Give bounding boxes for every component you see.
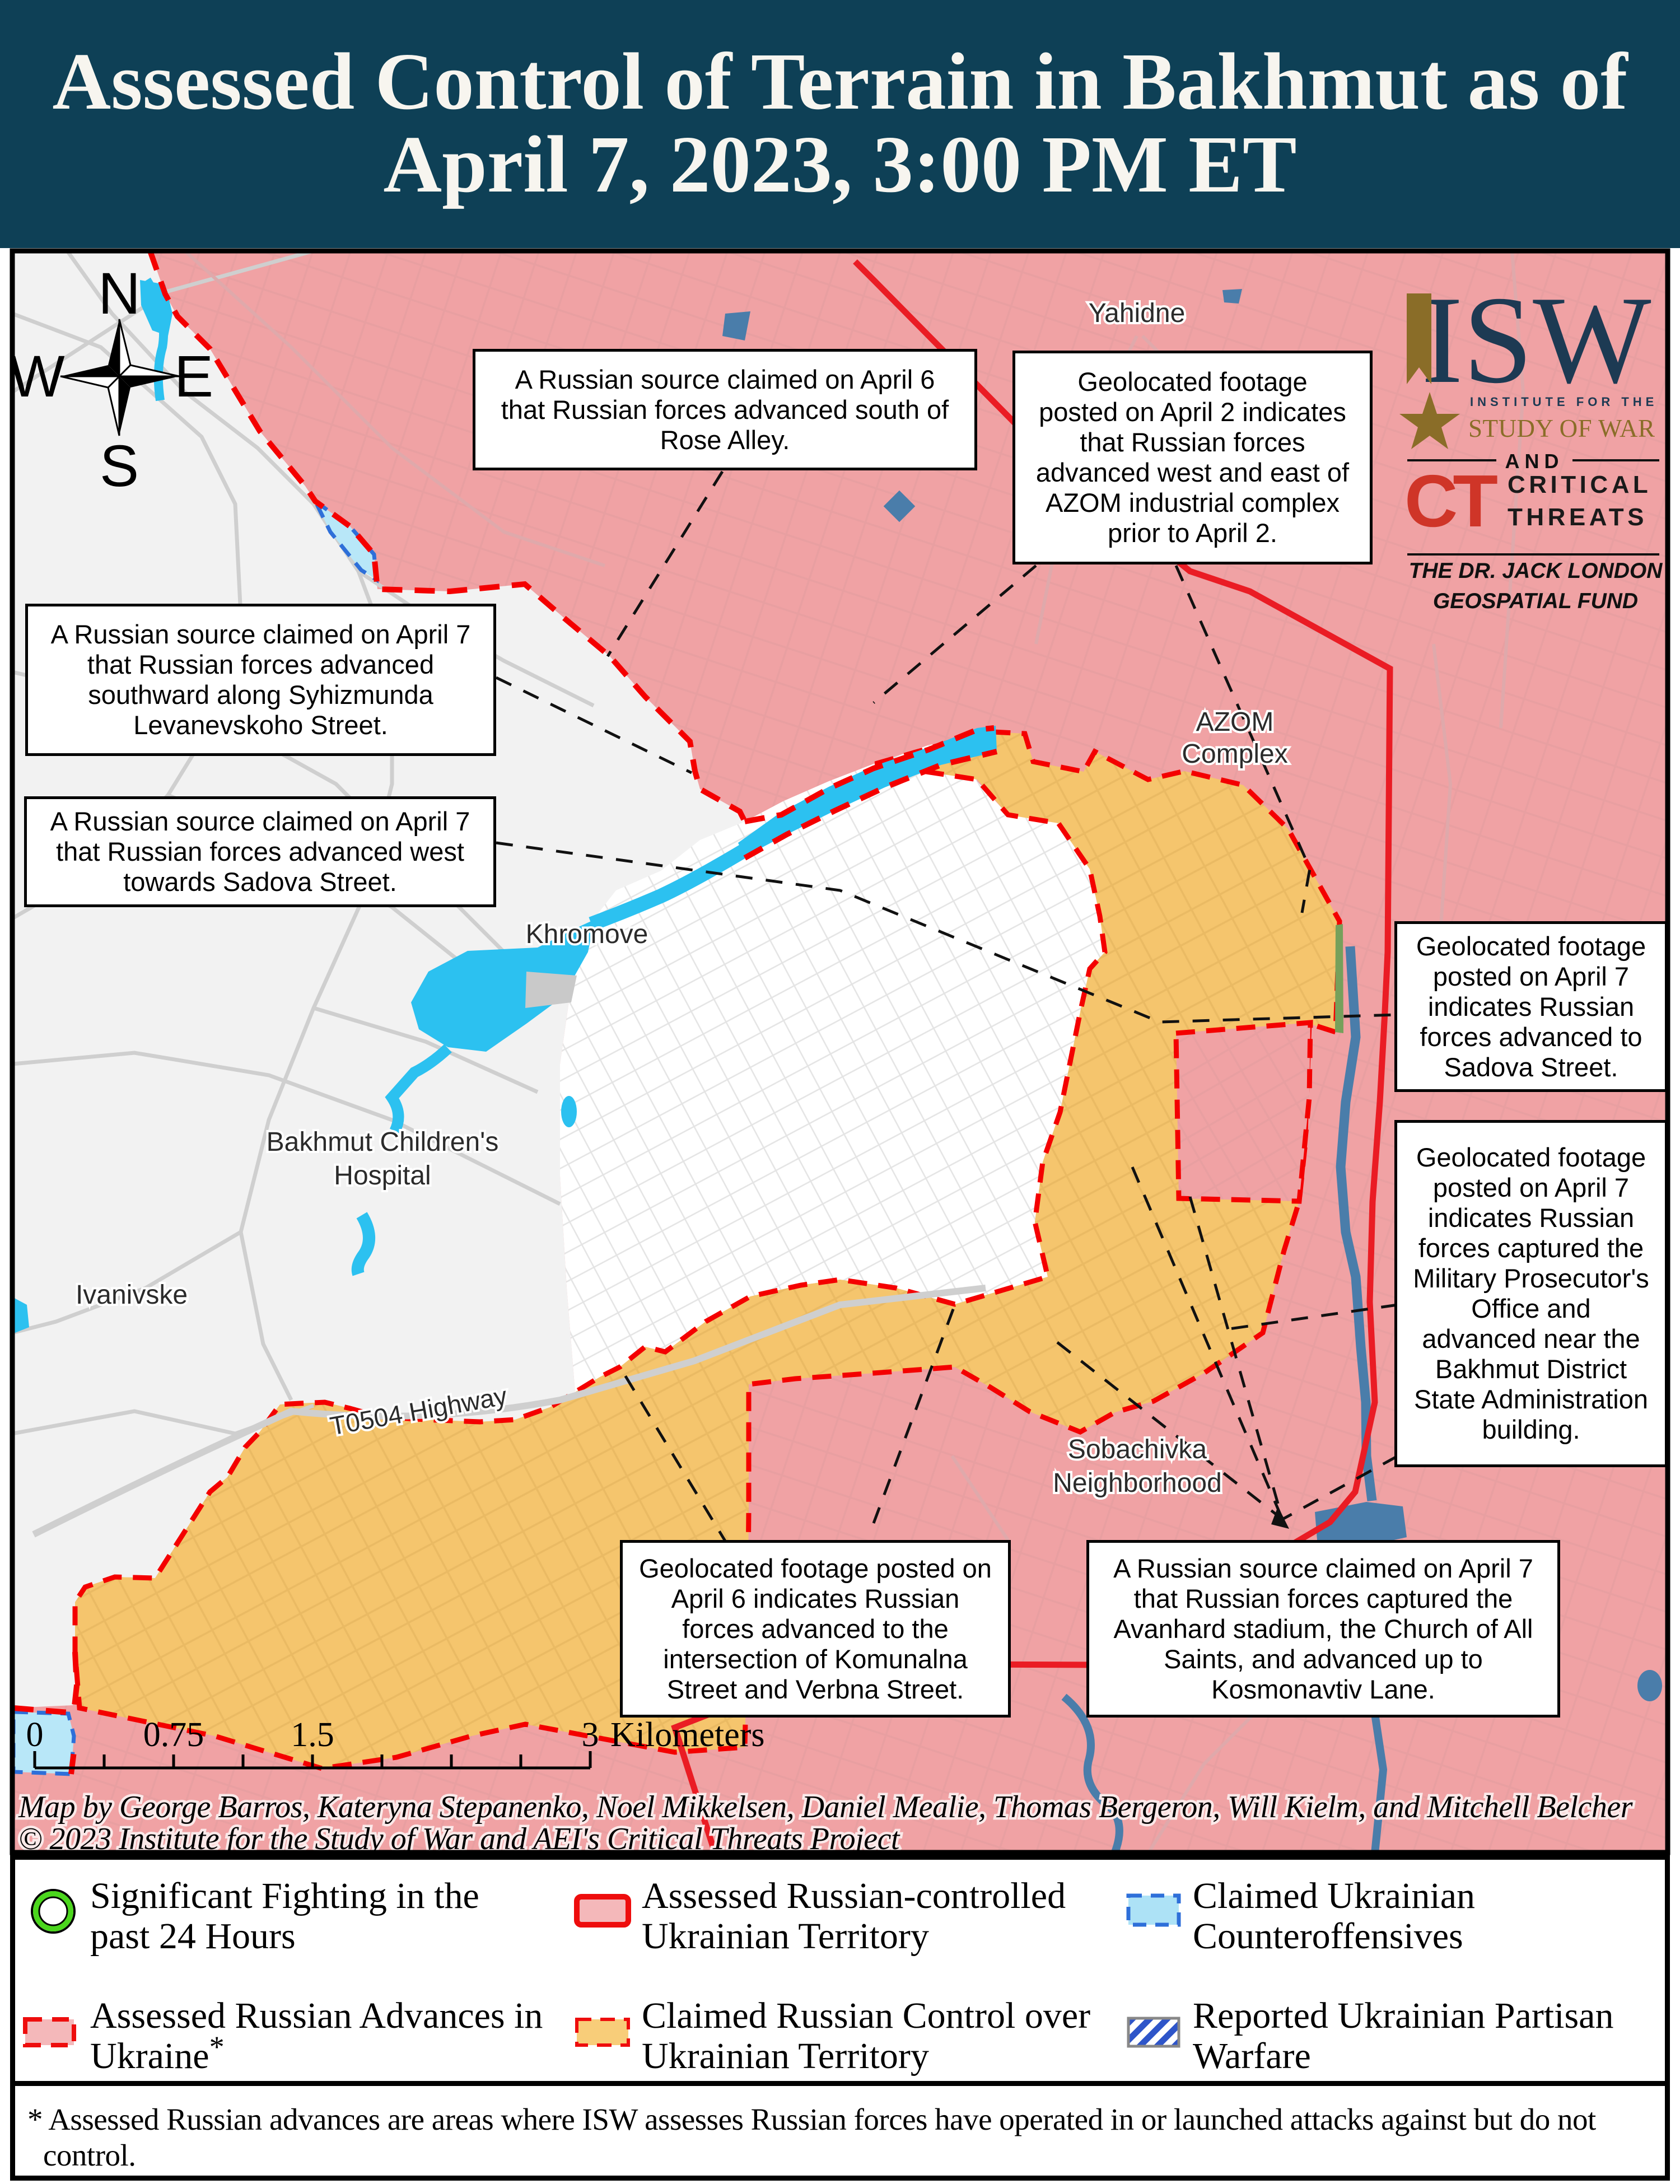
svg-text:1.5: 1.5: [291, 1716, 334, 1754]
svg-text:THREATS: THREATS: [1508, 503, 1648, 531]
svg-text:INSTITUTE FOR THE: INSTITUTE FOR THE: [1470, 395, 1658, 409]
svg-text:0: 0: [26, 1716, 44, 1754]
svg-text:Claimed Russian Control over: Claimed Russian Control over: [642, 1995, 1090, 2036]
svg-text:CT: CT: [1404, 460, 1497, 542]
svg-text:Assessed Russian Advances in: Assessed Russian Advances in: [90, 1995, 543, 2036]
svg-text:THE DR. JACK LONDON: THE DR. JACK LONDON: [1409, 559, 1663, 583]
svg-text:Ivanivske: Ivanivske: [76, 1280, 188, 1310]
svg-text:CRITICAL: CRITICAL: [1508, 471, 1651, 498]
svg-text:Ukrainian Territory: Ukrainian Territory: [642, 1916, 929, 1957]
svg-text:3: 3: [582, 1716, 599, 1754]
svg-text:STUDY OF WAR: STUDY OF WAR: [1468, 414, 1655, 442]
svg-text:S: S: [100, 433, 139, 499]
svg-text:Map by George Barros, Kateryna: Map by George Barros, Kateryna Stepanenk…: [18, 1790, 1633, 1824]
svg-text:Bakhmut Children's: Bakhmut Children's: [267, 1127, 499, 1157]
svg-text:Khromove: Khromove: [526, 920, 648, 949]
svg-text:Claimed Ukrainian: Claimed Ukrainian: [1193, 1875, 1475, 1916]
svg-text:0.75: 0.75: [143, 1716, 204, 1754]
svg-text:Significant Fighting in the: Significant Fighting in the: [90, 1875, 479, 1916]
svg-text:Kilometers: Kilometers: [610, 1716, 765, 1754]
svg-text:Ukraine*: Ukraine*: [90, 2030, 225, 2076]
svg-text:Hospital: Hospital: [334, 1161, 431, 1191]
svg-text:AZOM: AZOM: [1196, 707, 1274, 737]
svg-text:GEOSPATIAL FUND: GEOSPATIAL FUND: [1433, 589, 1638, 613]
svg-text:Assessed Russian-controlled: Assessed Russian-controlled: [642, 1875, 1066, 1916]
svg-text:ISW: ISW: [1421, 270, 1651, 409]
svg-text:N: N: [98, 261, 141, 326]
svg-text:Yahidne: Yahidne: [1089, 298, 1186, 328]
svg-text:Complex: Complex: [1182, 739, 1287, 769]
svg-text:Neighborhood: Neighborhood: [1053, 1468, 1222, 1498]
svg-text:past 24 Hours: past 24 Hours: [90, 1916, 296, 1957]
svg-text:E: E: [174, 344, 213, 409]
svg-text:Ukrainian Territory: Ukrainian Territory: [642, 2036, 929, 2076]
svg-text:Sobachivka: Sobachivka: [1068, 1435, 1207, 1464]
svg-text:W: W: [9, 344, 64, 409]
svg-text:Reported Ukrainian Partisan: Reported Ukrainian Partisan: [1193, 1995, 1613, 2036]
svg-text:Warfare: Warfare: [1193, 2036, 1311, 2076]
svg-text:AND: AND: [1505, 450, 1564, 473]
svg-text:Counteroffensives: Counteroffensives: [1193, 1916, 1463, 1957]
